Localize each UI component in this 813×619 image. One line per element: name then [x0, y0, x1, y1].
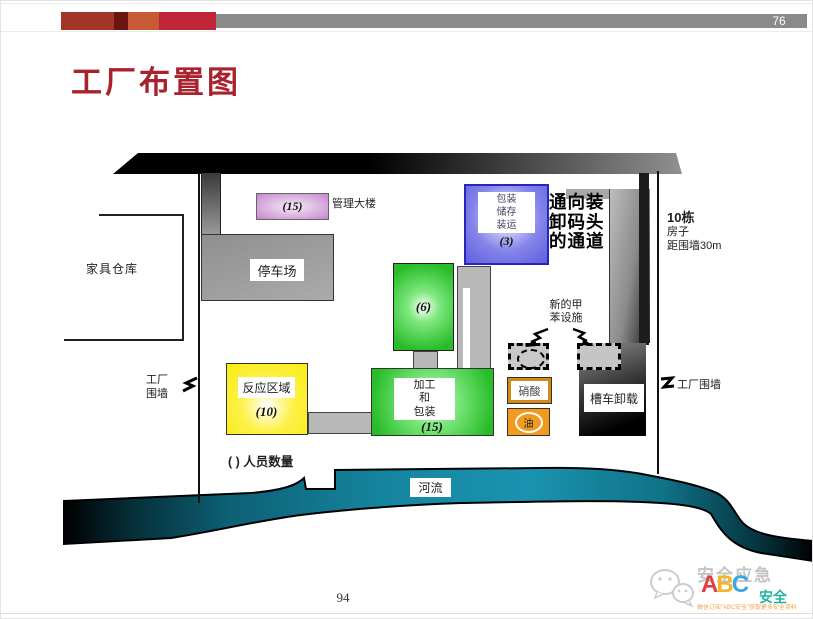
- under-rule: [1, 31, 813, 32]
- furniture-warehouse-label: 家具仓库: [86, 260, 138, 277]
- packaging-count: (3): [466, 234, 547, 249]
- nitric-acid-box: 硝酸: [507, 377, 552, 404]
- dock-passage-label: 通向装 卸码头 的通道: [549, 193, 613, 252]
- packaging-storage-label: 包装 储存 装运: [478, 192, 535, 233]
- management-count: (15): [283, 199, 303, 214]
- page-title: 工厂布置图: [71, 57, 241, 102]
- unit6-count: (6): [416, 299, 431, 315]
- packaging-storage-box: 包装 储存 装运 (3): [464, 184, 549, 265]
- toluene-tank-circle: [517, 349, 545, 369]
- processing-packaging-label: 加工 和 包装: [394, 378, 455, 420]
- furniture-warehouse-outline: [99, 214, 184, 341]
- right-road-edge: [639, 173, 649, 345]
- left-entrance-road: [201, 173, 221, 235]
- page-badge: 76: [756, 14, 802, 28]
- management-building-label: 管理大楼: [332, 195, 376, 211]
- color-block-crimson: [159, 12, 216, 30]
- wall-break-left-icon: [182, 375, 199, 394]
- houses-distance-note: 10栋 房子 距围墙30m: [667, 211, 721, 253]
- reaction-area-box: 反应区域 (10): [226, 363, 308, 435]
- logo-abc-text: ABC: [701, 573, 747, 597]
- top-rule: [1, 3, 813, 4]
- furniture-warehouse-bottom-edge: [64, 339, 184, 341]
- logo-tagline: 微信订阅"ABC安全"获取更多安全资料: [697, 603, 797, 612]
- oil-box: 油: [507, 408, 550, 436]
- processing-count: (15): [372, 419, 492, 435]
- management-building-box: (15): [256, 193, 329, 220]
- personnel-legend: ( ) 人员数量: [228, 451, 293, 470]
- wechat-icon: [647, 565, 695, 609]
- unit6-processing-connector: [413, 351, 438, 369]
- mid-road-notch: [463, 288, 470, 369]
- slide: 76 工厂布置图 (15) 管理大楼 家具仓库 停车场 包装 储存 装运 (3)…: [0, 0, 813, 619]
- oil-ellipse: 油: [515, 412, 543, 433]
- reaction-area-label: 反应区域: [238, 377, 295, 398]
- top-road: [113, 153, 682, 174]
- factory-wall-left-label: 工厂 围墙: [146, 373, 168, 401]
- parking-label: 停车场: [250, 259, 304, 281]
- river-label: 河流: [410, 478, 451, 497]
- new-toluene-label: 新的甲 苯设施: [544, 299, 588, 325]
- toluene-arrow-left-icon: [523, 327, 551, 350]
- watermark-logo: 安全应急 ABC 安全 微信订阅"ABC安全"获取更多安全资料: [647, 555, 811, 617]
- color-block-orange: [128, 12, 159, 30]
- reaction-processing-connector: [308, 412, 372, 434]
- reaction-count: (10): [227, 404, 306, 420]
- processing-packaging-box: 加工 和 包装 (15): [371, 368, 494, 436]
- page-number: 94: [326, 590, 360, 606]
- wall-break-right-icon: [659, 375, 676, 392]
- toluene-arrow-right-icon: [571, 327, 597, 349]
- tank-truck-unloading-label: 槽车卸载: [584, 384, 644, 412]
- color-block-maroon: [114, 12, 128, 30]
- unit6-box: (6): [393, 263, 454, 351]
- factory-wall-right-label: 工厂围墙: [677, 378, 721, 392]
- color-block-brick: [61, 12, 114, 30]
- river-shape: [61, 459, 813, 564]
- header-color-blocks: [61, 12, 216, 30]
- factory-wall-left-line: [198, 173, 200, 503]
- factory-wall-right-line: [657, 171, 659, 474]
